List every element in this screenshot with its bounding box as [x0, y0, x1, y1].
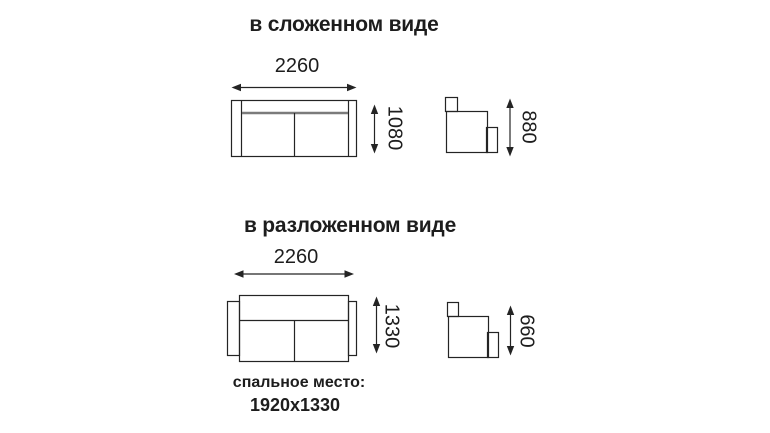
unfolded-width-arrow	[234, 270, 354, 277]
unfolded-height-value: 660	[515, 314, 538, 347]
sleeping-place-dimensions: 1920x1330	[250, 395, 340, 416]
unfolded-width-value: 2260	[274, 246, 319, 269]
section-title-folded: в сложенном виде	[249, 13, 438, 37]
armrest-right-block	[349, 302, 357, 356]
arrowhead-down-icon	[507, 346, 514, 356]
arrowhead-left-icon	[234, 270, 244, 277]
arrowhead-up-icon	[506, 99, 513, 109]
folded-height-value: 880	[517, 110, 540, 143]
folded-depth-value: 1080	[383, 106, 406, 151]
unfolded-depth-value: 1330	[380, 304, 403, 349]
folded-width-value: 2260	[275, 55, 320, 78]
sofa-dimensions-diagram: в сложенном виде 2260 1080 880 в разложе…	[0, 0, 770, 433]
arrowhead-left-icon	[232, 84, 242, 91]
arrowhead-right-icon	[345, 270, 355, 277]
folded-depth-arrow	[371, 105, 378, 154]
arrowhead-down-icon	[506, 147, 513, 157]
folded-top-view-drawing	[232, 101, 357, 157]
backrest-top-block	[448, 303, 459, 317]
folded-width-arrow	[232, 84, 357, 91]
backrest-top-block	[446, 98, 458, 112]
arrowhead-down-icon	[371, 144, 378, 154]
arrowhead-right-icon	[347, 84, 357, 91]
seat-front-block	[488, 333, 499, 358]
folded-side-view-drawing	[446, 98, 498, 153]
unfolded-height-arrow	[507, 306, 514, 356]
seat-front-block	[487, 128, 498, 153]
sofa-body-block	[447, 112, 488, 153]
unfolded-side-view-drawing	[448, 303, 499, 358]
armrest-left-block	[228, 302, 240, 356]
arrowhead-up-icon	[371, 105, 378, 115]
folded-height-arrow	[506, 99, 513, 157]
sleeping-place-label: спальное место:	[233, 374, 365, 392]
unfolded-top-view-drawing	[228, 296, 357, 362]
section-title-unfolded: в разложенном виде	[244, 214, 456, 238]
arrowhead-up-icon	[507, 306, 514, 316]
sofa-body-block	[449, 317, 489, 358]
